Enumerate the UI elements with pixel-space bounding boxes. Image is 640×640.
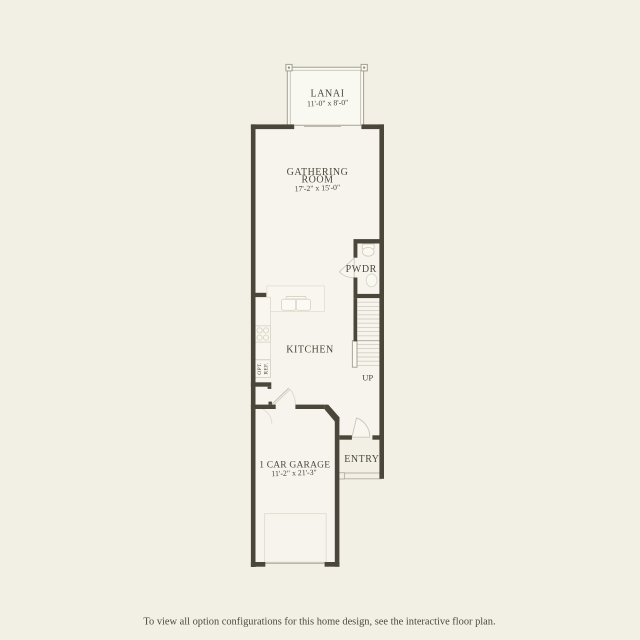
svg-text:17'-2" x 15'-0": 17'-2" x 15'-0" [294,183,340,194]
svg-text:KITCHEN: KITCHEN [286,344,333,355]
svg-text:PWDR: PWDR [346,264,377,275]
svg-text:REF.: REF. [263,362,269,374]
svg-text:OPT.: OPT. [257,362,263,375]
svg-text:To view all option configurati: To view all option configurations for th… [143,616,495,627]
svg-text:ENTRY: ENTRY [344,454,379,465]
svg-text:UP: UP [362,372,373,382]
svg-text:11'-2" x 21'-3": 11'-2" x 21'-3" [271,468,317,479]
svg-text:11'-0" x 8'-0": 11'-0" x 8'-0" [307,98,349,108]
